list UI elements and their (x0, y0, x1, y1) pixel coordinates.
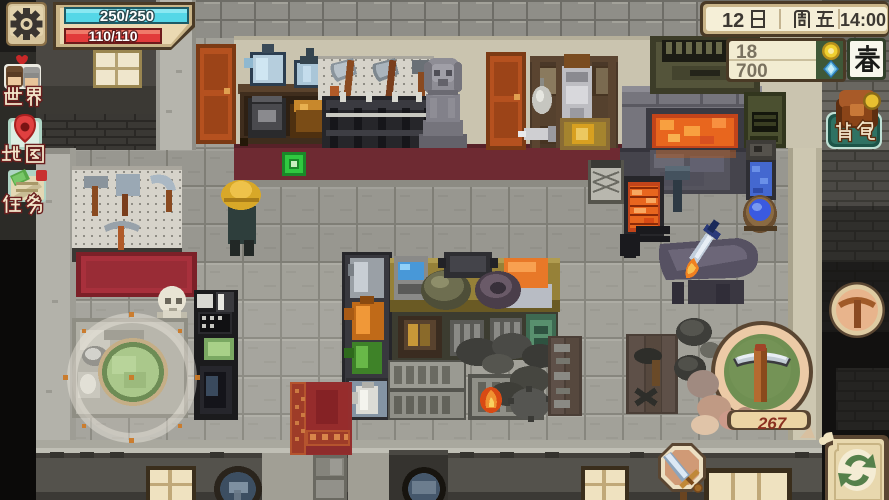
svg-text:267: 267 (757, 414, 788, 433)
svg-text:110/110: 110/110 (88, 28, 137, 44)
svg-text:12: 12 (722, 10, 744, 32)
svg-text:700: 700 (736, 61, 768, 82)
svg-text:14:00: 14:00 (840, 10, 886, 30)
svg-text:250/250: 250/250 (100, 8, 154, 25)
svg-text:18: 18 (736, 42, 757, 63)
